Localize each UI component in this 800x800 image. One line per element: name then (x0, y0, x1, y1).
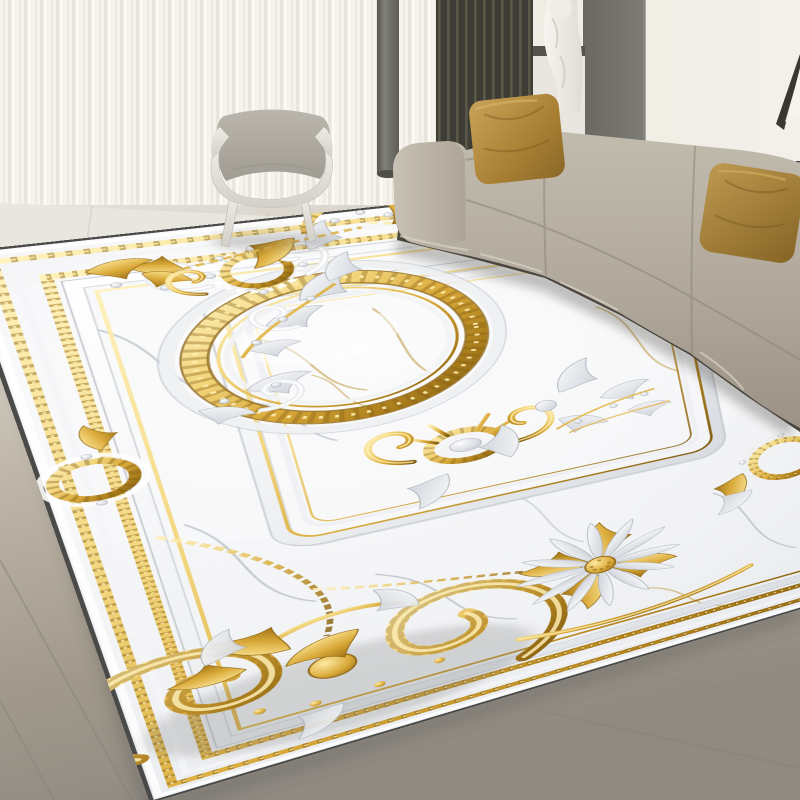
velvet-pillow-left (468, 93, 566, 186)
living-room-photo: { "meta": { "type": "product-photograph"… (0, 0, 800, 800)
lounge-chair (210, 110, 334, 251)
three-seat-sofa (393, 93, 800, 432)
velvet-pillow-right (698, 161, 800, 265)
sofa-arm-left (393, 141, 466, 245)
furniture-foreground (0, 0, 800, 800)
